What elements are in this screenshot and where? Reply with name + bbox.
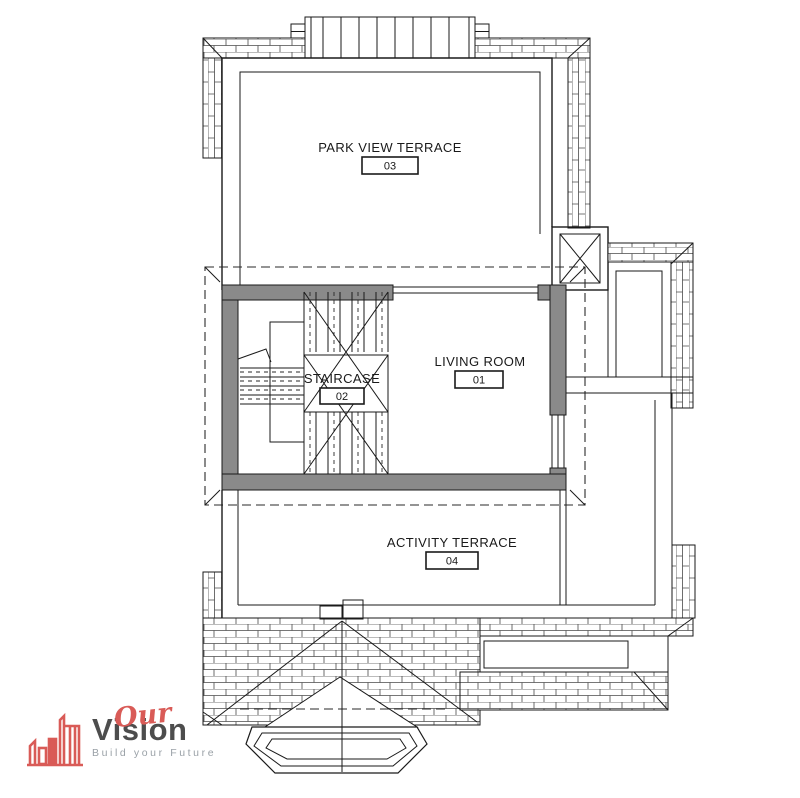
terrace-roof-tiles — [203, 38, 590, 228]
staircase: STAIRCASE 02 — [238, 292, 388, 474]
park-view-terrace: PARK VIEW TERRACE 03 — [203, 17, 590, 290]
park-view-terrace-name: PARK VIEW TERRACE — [318, 140, 462, 155]
staircase-number: 02 — [336, 391, 348, 403]
pergola-bumpout — [291, 17, 489, 58]
activity-terrace-number: 04 — [446, 556, 458, 568]
floor-plan-page: PARK VIEW TERRACE 03 — [0, 0, 800, 798]
living-room-name: LIVING ROOM — [434, 354, 525, 369]
logo-text: Our Vision Build your Future — [92, 700, 216, 759]
living-room-number: 01 — [473, 375, 485, 387]
park-view-terrace-number: 03 — [384, 161, 396, 173]
room-label-activity-terrace: ACTIVITY TERRACE 04 — [387, 535, 517, 569]
logo-tagline: Build your Future — [92, 748, 216, 759]
room-label-living-room: LIVING ROOM 01 — [434, 354, 525, 388]
central-walls — [222, 285, 566, 490]
activity-terrace: ACTIVITY TERRACE 04 — [203, 490, 693, 618]
stair-break-line — [238, 349, 271, 362]
bay-window — [246, 727, 427, 773]
room-label-park-view-terrace: PARK VIEW TERRACE 03 — [318, 140, 462, 174]
window-right — [552, 415, 564, 468]
window-top — [393, 287, 538, 293]
room-label-staircase: STAIRCASE 02 — [304, 371, 380, 404]
staircase-name: STAIRCASE — [304, 371, 380, 386]
floor-plan-drawing: PARK VIEW TERRACE 03 — [0, 0, 800, 798]
logo: Our Vision Build your Future — [26, 700, 216, 768]
activity-terrace-name: ACTIVITY TERRACE — [387, 535, 517, 550]
lower-roof — [203, 572, 693, 773]
shaft-skylight — [552, 227, 608, 290]
logo-building-icon — [26, 708, 88, 768]
